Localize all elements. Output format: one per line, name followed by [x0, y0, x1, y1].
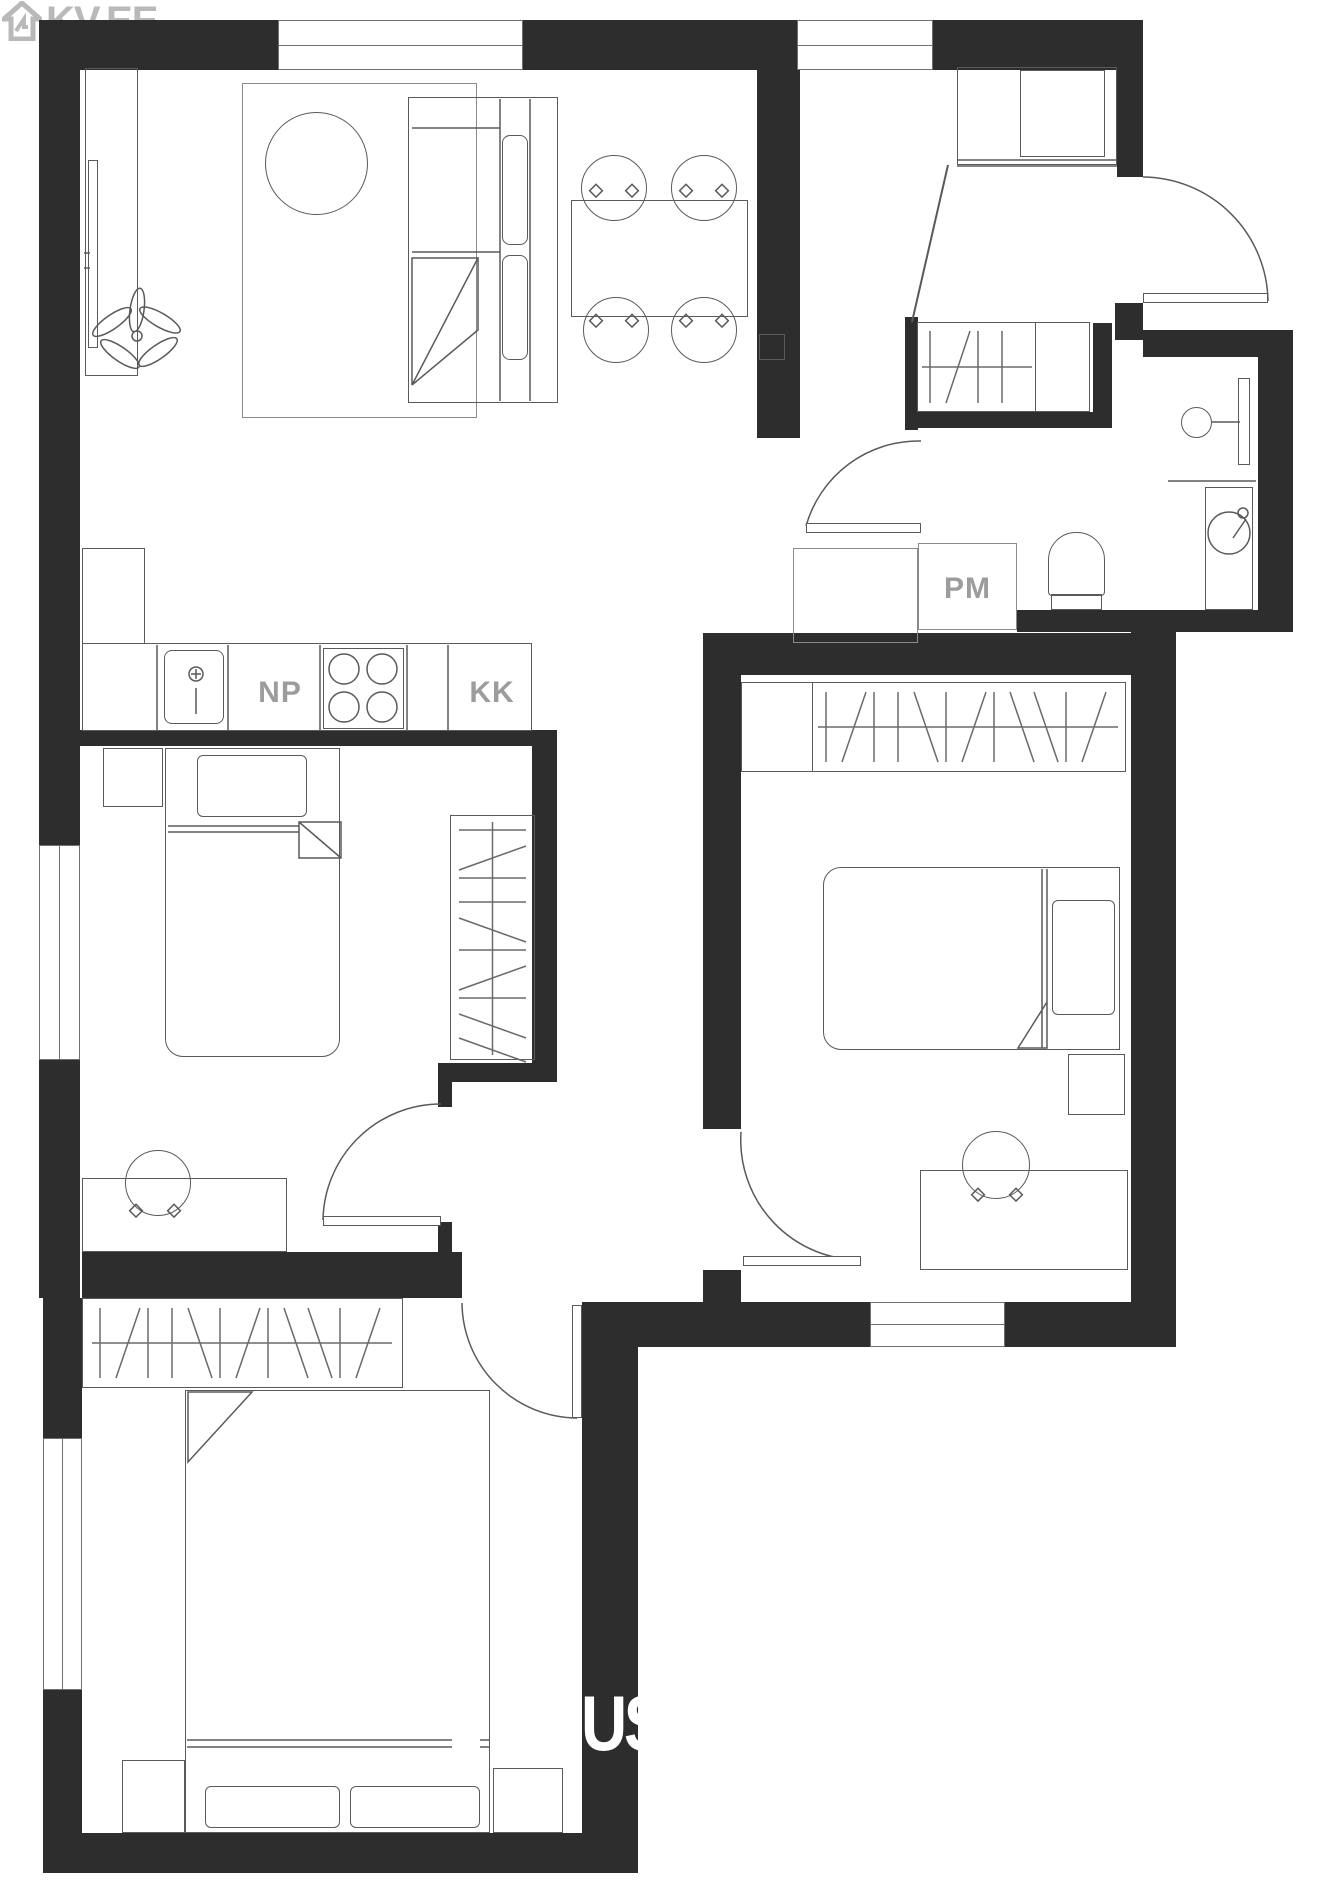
- bedroom2-door-leaf: [743, 1256, 861, 1266]
- bedroom3-wardrobe-hatch: [92, 1308, 392, 1378]
- bedroom2-wardrobe-hatch: [818, 692, 1118, 762]
- bedroom1-blanket-fold: [168, 822, 341, 858]
- watermark-us: US: [581, 1684, 663, 1762]
- hall-wardrobe-hatch: [922, 331, 1032, 403]
- bedroom1-wardrobe-hatch: [459, 822, 526, 1062]
- washer-handle: [1233, 519, 1246, 538]
- floor-plan-canvas: KV.EE: [0, 0, 1334, 1898]
- bedroom3-door-arc: [462, 1303, 577, 1418]
- bedroom2-door-arc: [741, 1132, 861, 1260]
- bedroom3-door-leaf: [572, 1305, 582, 1418]
- burner-icon: [329, 692, 359, 722]
- sloped-wall-line: [912, 165, 948, 322]
- tv-ticks: [84, 253, 90, 268]
- bedroom3-bed-lines: [187, 1392, 489, 1747]
- hall-door-arc: [806, 441, 921, 526]
- storage-label: PM: [930, 574, 1005, 604]
- burner-icon: [329, 654, 359, 684]
- plan-linework: [0, 0, 1334, 1898]
- faucet-icon: [191, 669, 201, 714]
- bedroom1-door-arc: [323, 1104, 441, 1220]
- sofa-lines: [412, 99, 530, 401]
- bedroom1-door-leaf: [323, 1216, 441, 1226]
- front-door-leaf: [1143, 293, 1268, 303]
- burner-icon: [367, 654, 397, 684]
- watermark-letter-fragment: [452, 1734, 480, 1760]
- burner-icon: [367, 692, 397, 722]
- dishwasher-label: NP: [250, 678, 310, 708]
- sofa-blanket-fold: [412, 258, 478, 385]
- plant-icon: [89, 287, 183, 373]
- front-door-arc: [1143, 177, 1268, 301]
- bedroom2-bed-lines: [1018, 869, 1047, 1048]
- watermark-letter-fragment: [505, 1734, 541, 1760]
- hall-door-leaf: [806, 523, 921, 533]
- fridge-label: KK: [462, 678, 522, 708]
